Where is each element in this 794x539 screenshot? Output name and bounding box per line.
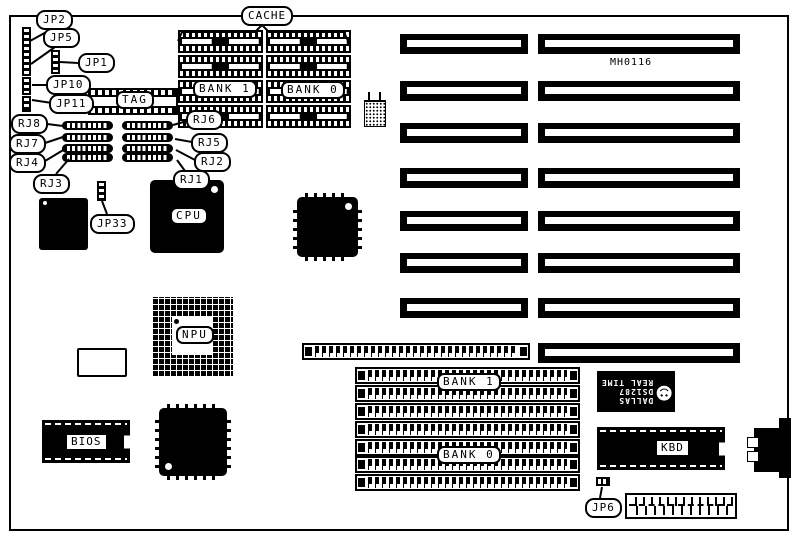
callout-rj5: RJ5	[191, 133, 228, 153]
callout-jp33: JP33	[90, 214, 135, 234]
cpu-label: CPU	[170, 207, 208, 225]
tag-label: TAG	[116, 91, 154, 109]
callout-rj4: RJ4	[9, 153, 46, 173]
callout-jp6: JP6	[585, 498, 622, 518]
simm-bank0-label: BANK 0	[437, 446, 501, 464]
callout-rj6: RJ6	[186, 110, 223, 130]
callout-jp2: JP2	[36, 10, 73, 30]
cache-bank0-label: BANK 0	[281, 81, 345, 99]
callout-cache: CACHE	[241, 6, 293, 26]
callout-jp10: JP10	[46, 75, 91, 95]
callout-jp1: JP1	[78, 53, 115, 73]
callout-jp11: JP11	[49, 94, 94, 114]
callout-rj2: RJ2	[194, 152, 231, 172]
cache-brace	[178, 25, 348, 41]
pin1-marker	[174, 319, 179, 324]
callout-rj7: RJ7	[9, 134, 46, 154]
callout-jp5: JP5	[43, 28, 80, 48]
simm-bank1-label: BANK 1	[437, 373, 501, 391]
bios-label: BIOS	[66, 434, 107, 450]
kbd-label: KBD	[656, 440, 689, 456]
npu-label: NPU	[176, 326, 214, 344]
callout-rj8: RJ8	[11, 114, 48, 134]
cache-bank1-label: BANK 1	[193, 80, 257, 98]
motherboard-diagram: ☻ DALLAS DS1287 REAL TIME JP2 JP5 JP1 JP…	[0, 0, 794, 539]
leader-lines	[0, 0, 794, 539]
callout-rj1: RJ1	[173, 170, 210, 190]
callout-rj3: RJ3	[33, 174, 70, 194]
